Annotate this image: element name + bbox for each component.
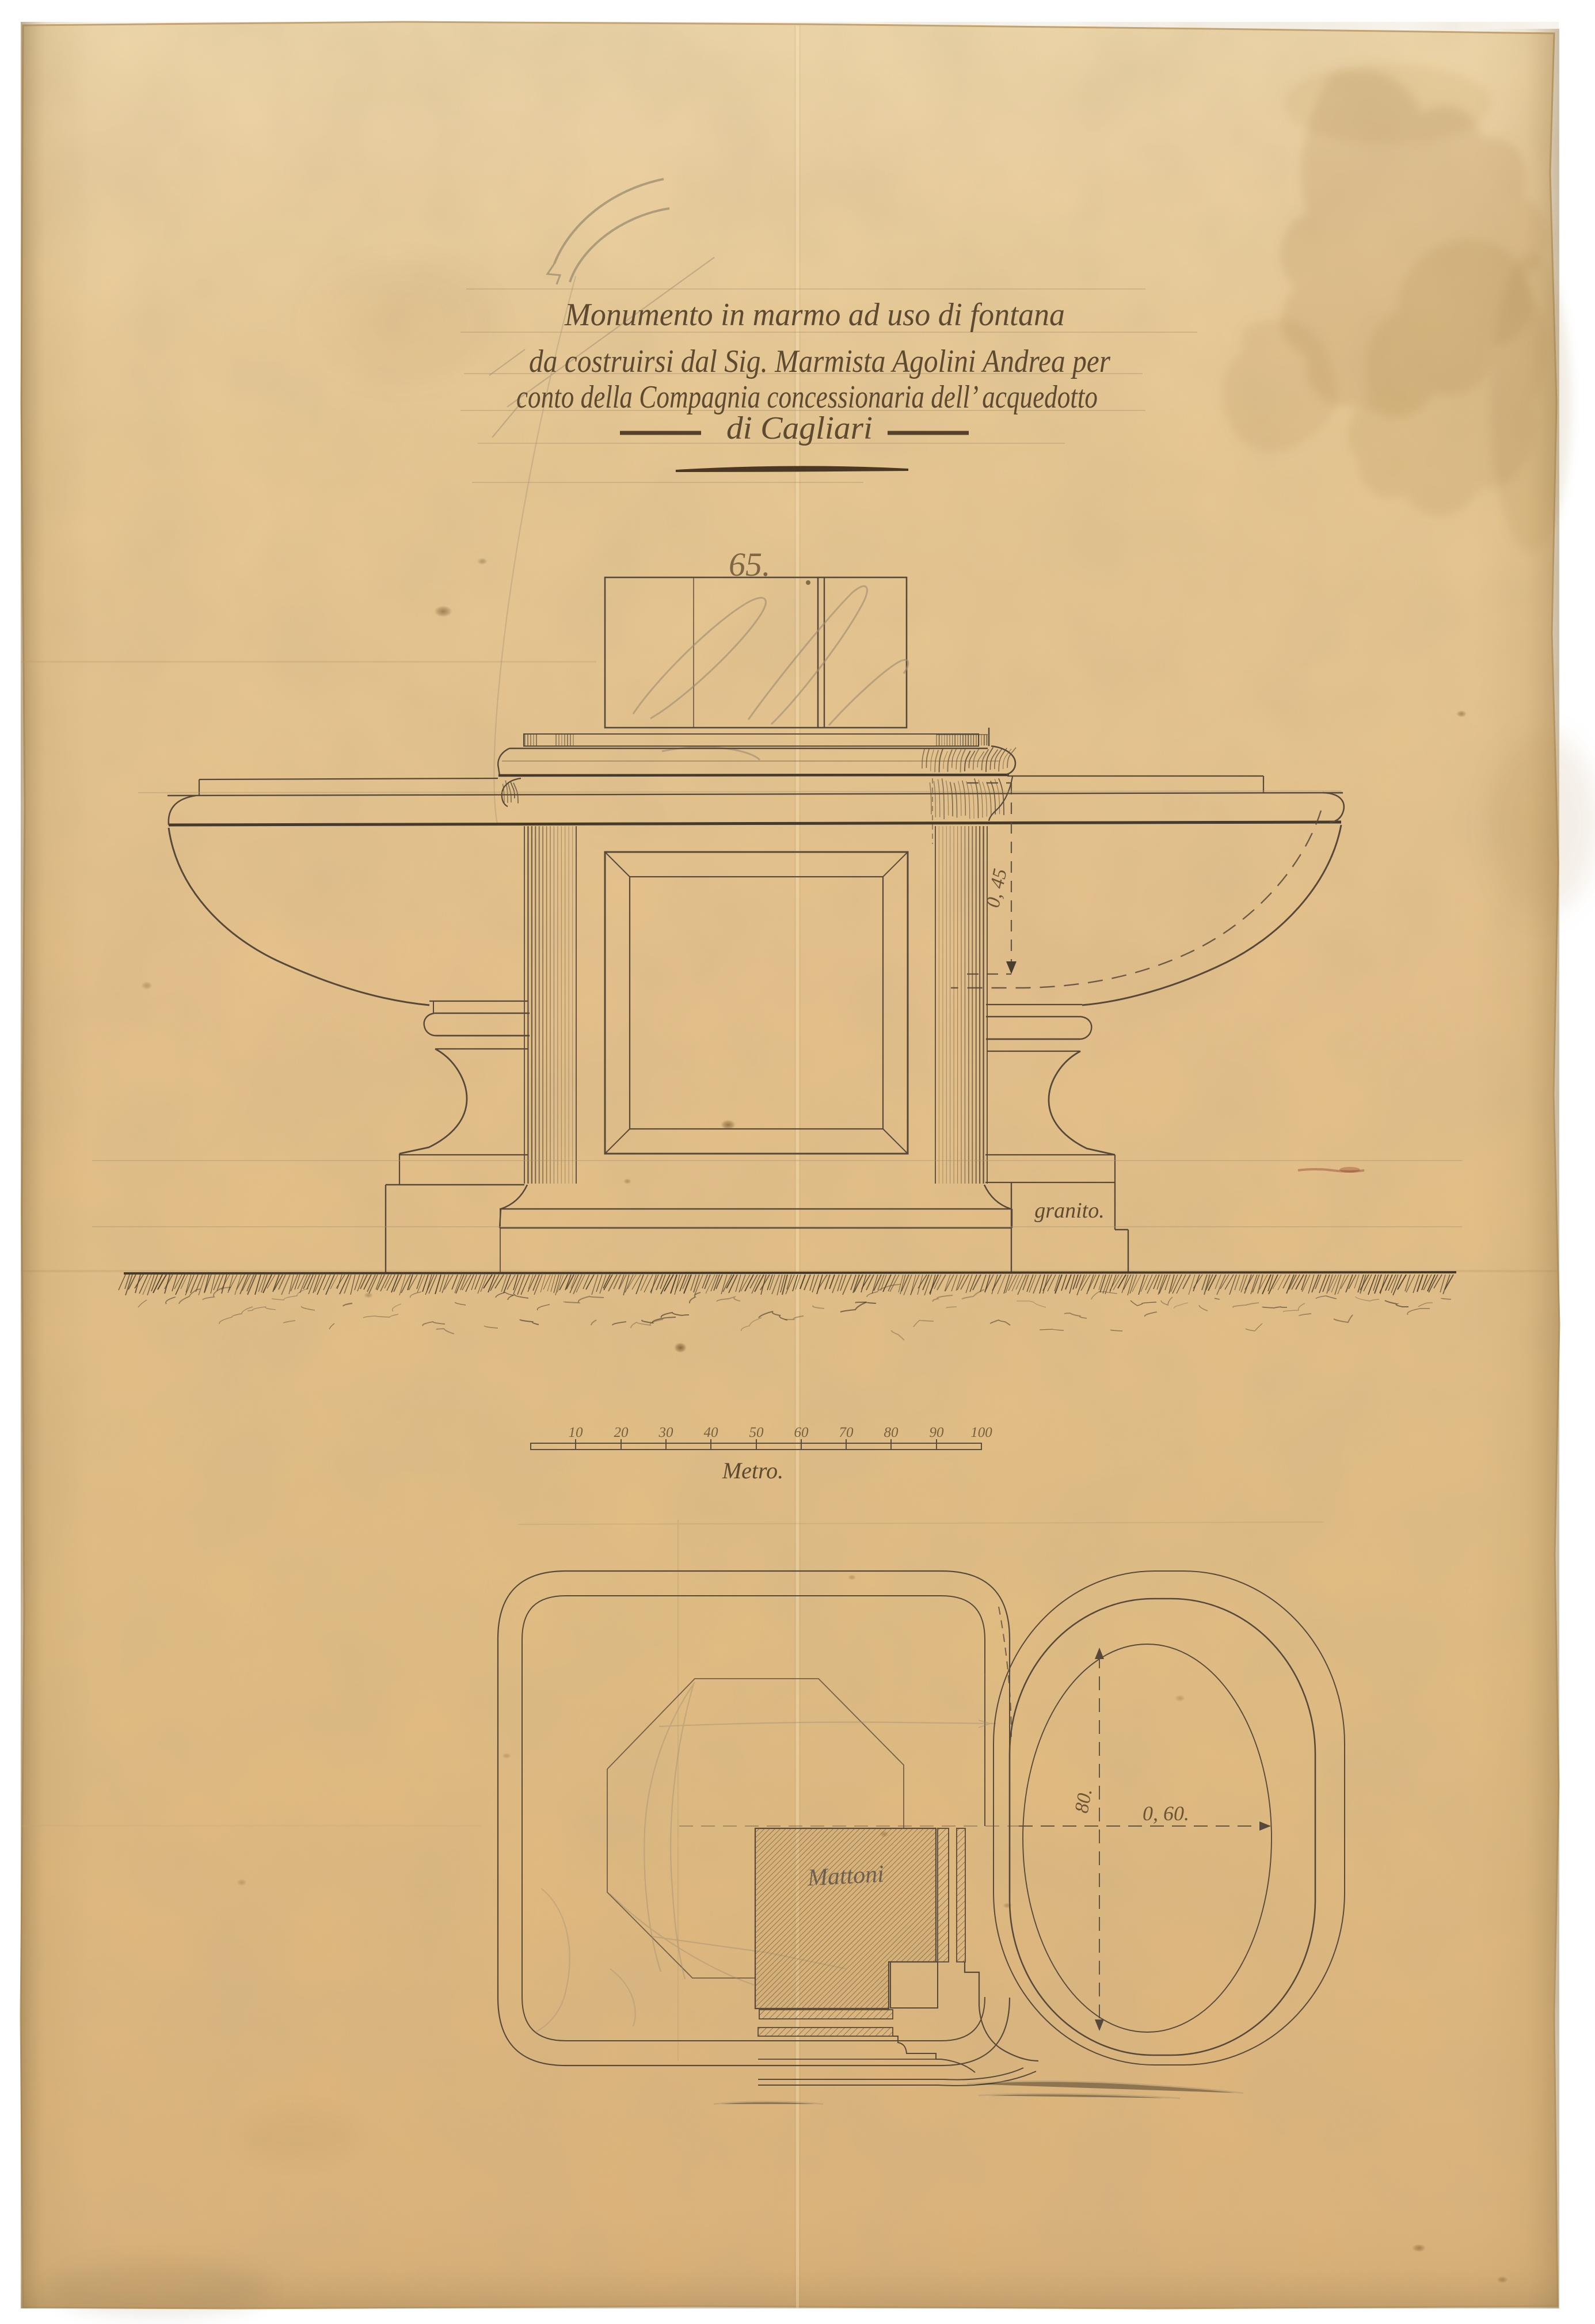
svg-text:10: 10: [569, 1425, 584, 1440]
svg-text:20: 20: [614, 1425, 629, 1440]
svg-text:80.: 80.: [1071, 1787, 1097, 1815]
svg-text:50: 50: [749, 1425, 764, 1440]
svg-text:Monumento in marmo ad uso di f: Monumento in marmo ad uso di fontana: [564, 297, 1065, 333]
svg-text:di Cagliari: di Cagliari: [726, 410, 873, 446]
svg-text:Metro.: Metro.: [722, 1458, 783, 1484]
svg-text:conto della Compagnia concessi: conto della Compagnia concessionaria del…: [516, 379, 1098, 415]
svg-text:80: 80: [884, 1425, 899, 1440]
svg-text:Mattoni: Mattoni: [806, 1861, 885, 1892]
svg-text:100: 100: [970, 1425, 992, 1440]
svg-text:70: 70: [839, 1425, 854, 1440]
svg-text:30: 30: [658, 1425, 674, 1440]
svg-text:90: 90: [930, 1425, 945, 1440]
svg-text:0, 60.: 0, 60.: [1143, 1802, 1189, 1825]
svg-text:40: 40: [704, 1425, 719, 1440]
svg-text:da costruirsi dal Sig. Marmist: da costruirsi dal Sig. Marmista Agolini …: [529, 344, 1110, 379]
svg-text:60: 60: [794, 1425, 809, 1440]
svg-text:granito.: granito.: [1034, 1199, 1104, 1223]
